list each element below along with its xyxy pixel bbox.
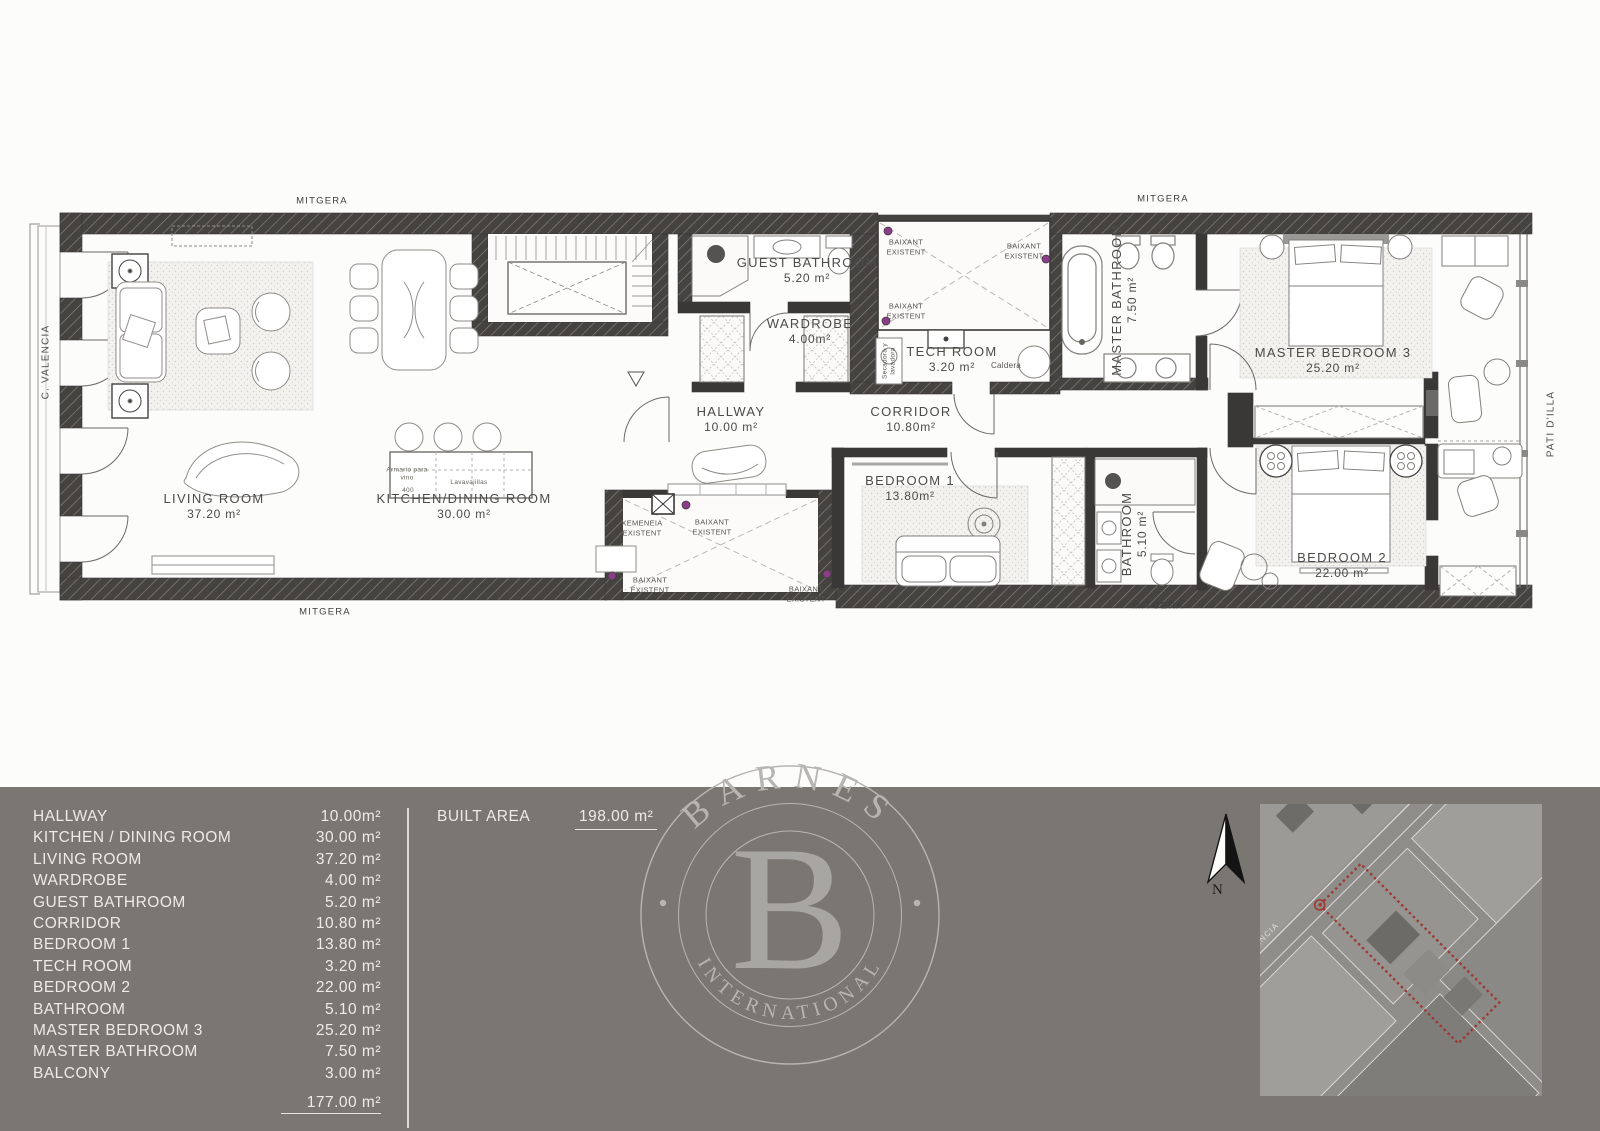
legend-row: BALCONY3.00 m² [33,1063,381,1084]
legend-row: CORRIDOR10.80 m² [33,913,381,934]
room-area: 5.10 m² [1135,492,1149,577]
room-area: 3.00 m² [281,1063,381,1084]
room-name: BEDROOM 1 [33,934,281,955]
legend-row: BATHROOM5.10 m² [33,999,381,1020]
logo-monogram: B [731,809,850,1007]
room-area: 7.50 m² [1125,224,1139,375]
legend-row: KITCHEN / DINING ROOM30.00 m² [33,827,381,848]
dishwasher-annotation: Lavavajillas [450,479,487,487]
label-corridor: CORRIDOR 10.80m² [870,404,951,434]
washer-dryer-annotation: Secadora y lavadora [882,338,899,384]
legend-row: HALLWAY10.00m² [33,806,381,827]
xemeneia-annotation: XEMENEIA EXISTENT [615,518,669,538]
room-name: TECH ROOM [33,956,281,977]
room-area: 10.00 m² [697,420,766,434]
site-plan-blocks: VALÈNCIA [1256,798,1546,1100]
label-bedroom1: BEDROOM 1 13.80m² [865,473,955,503]
room-name: MASTER BATHROOM [33,1041,281,1062]
room-name: LIVING ROOM [164,491,265,507]
label-master-bedroom3: MASTER BEDROOM 3 25.20 m² [1255,345,1412,375]
wine-cabinet-annotation: Armario para vino [383,467,431,484]
room-name: BEDROOM 2 [1297,550,1387,566]
gallery-furniture [1426,236,1522,596]
room-area: 13.80m² [865,489,955,503]
legend-row: TECH ROOM3.20 m² [33,956,381,977]
legend-row: BEDROOM 113.80 m² [33,934,381,955]
room-name: BATHROOM [33,999,281,1020]
room-area: 30.00 m² [281,827,381,848]
room-area: 10.80 m² [281,913,381,934]
room-area: 4.00m² [767,332,853,346]
label-bedroom2: BEDROOM 2 22.00 m² [1297,550,1387,580]
room-area: 37.20 m² [164,507,265,521]
built-area-label: BUILT AREA [437,806,575,830]
room-name: BEDROOM 2 [33,977,281,998]
room-name: CORRIDOR [870,404,951,420]
baixant-annotation: BAIXANT EXISTENT [623,575,677,595]
baixant-annotation: BAIXANT EXISTENT [997,241,1051,261]
room-name: CORRIDOR [33,913,281,934]
barnes-logo: B BARNES INTERNATIONAL [628,753,952,1077]
label-bathroom: BATHROOM 5.10 m² [1119,492,1149,577]
mitgera-label-bottom-left: MITGERA [299,607,351,618]
room-area: 7.50 m² [281,1041,381,1062]
room-area: 25.20 m² [281,1020,381,1041]
room-name: GUEST BATHROOM [737,255,878,271]
baixant-annotation: BAIXANT EXISTENT [879,237,933,257]
north-label: N [1212,882,1223,898]
room-area: 5.20 m² [281,892,381,913]
label-master-bathroom: MASTER BATHROOM 7.50 m² [1109,224,1139,375]
room-name: GUEST BATHROOM [33,892,281,913]
room-area: 22.00 m² [281,977,381,998]
room-name: BEDROOM 1 [865,473,955,489]
mitgera-label-bottom-right: MITGERA [1132,601,1184,612]
caldera-annotation: Caldera [991,361,1021,371]
label-hallway: HALLWAY 10.00 m² [697,404,766,434]
legend: HALLWAY10.00m² KITCHEN / DINING ROOM30.0… [33,806,381,1114]
footer-divider [407,808,409,1128]
logo-dot-right [914,900,920,906]
room-name: HALLWAY [697,404,766,420]
living-room-furniture [108,226,313,574]
room-name: BALCONY [33,1063,281,1084]
legend-row: MASTER BEDROOM 325.20 m² [33,1020,381,1041]
master-bathroom-fixtures [1062,236,1242,382]
room-area: 4.00 m² [281,870,381,891]
floor-plan-drawing [0,0,1600,770]
room-area: 3.20 m² [906,360,997,374]
legend-total: 177.00 m² [33,1092,381,1114]
room-name: LIVING ROOM [33,849,281,870]
mitgera-label-top-left: MITGERA [296,196,348,207]
room-area: 10.80m² [870,420,951,434]
room-area: 25.20 m² [1255,361,1412,375]
room-area: 10.00m² [281,806,381,827]
room-name: WARDROBE [33,870,281,891]
legend-row: LIVING ROOM37.20 m² [33,849,381,870]
room-name: MASTER BATHROOM [1109,224,1125,375]
street-balcony [30,224,60,594]
room-area: 3.20 m² [281,956,381,977]
room-name: WARDROBE [767,316,853,332]
room-name: HALLWAY [33,806,281,827]
wine-cabinet-dimension: 400 [402,487,414,495]
floorplan-page: MITGERA MITGERA MITGERA MITGERA C. VALEN… [0,0,1600,1131]
legend-row: WARDROBE4.00 m² [33,870,381,891]
street-label: C. VALENCIA [41,325,52,400]
room-area: 5.20 m² [737,271,878,285]
label-tech-room: TECH ROOM 3.20 m² [906,344,997,374]
label-living-room: LIVING ROOM 37.20 m² [164,491,265,521]
legend-row: BEDROOM 222.00 m² [33,977,381,998]
room-area: 5.10 m² [281,999,381,1020]
stairwell [488,234,669,442]
courtyard-label: PATI D'ILLA [1546,391,1557,457]
baixant-annotation: BAIXANT EXISTENT [879,301,933,321]
room-name: KITCHEN / DINING ROOM [33,827,281,848]
room-area: 13.80 m² [281,934,381,955]
total-area: 177.00 m² [281,1092,381,1114]
room-area: 37.20 m² [281,849,381,870]
mitgera-label-top-right: MITGERA [1137,194,1189,205]
baixant-annotation: BAIXANT EXISTENT [779,584,833,604]
label-kitchen: KITCHEN/DINING ROOM 30.00 m² [377,491,552,521]
room-name: MASTER BEDROOM 3 [1255,345,1412,361]
site-plan: VALÈNCIA [1256,798,1546,1100]
room-name: BATHROOM [1119,492,1135,577]
built-area: BUILT AREA 198.00 m² [437,806,657,830]
legend-row: MASTER BATHROOM7.50 m² [33,1041,381,1062]
baixant-annotation: BAIXANT EXISTENT [685,517,739,537]
label-wardrobe: WARDROBE 4.00m² [767,316,853,346]
room-area: 30.00 m² [377,507,552,521]
room-name: TECH ROOM [906,344,997,360]
label-guest-bathroom: GUEST BATHROOM 5.20 m² [737,255,878,285]
north-arrow: N [1200,812,1252,902]
legend-row: GUEST BATHROOM5.20 m² [33,892,381,913]
room-area: 22.00 m² [1297,566,1387,580]
logo-dot-left [660,900,666,906]
room-name: MASTER BEDROOM 3 [33,1020,281,1041]
